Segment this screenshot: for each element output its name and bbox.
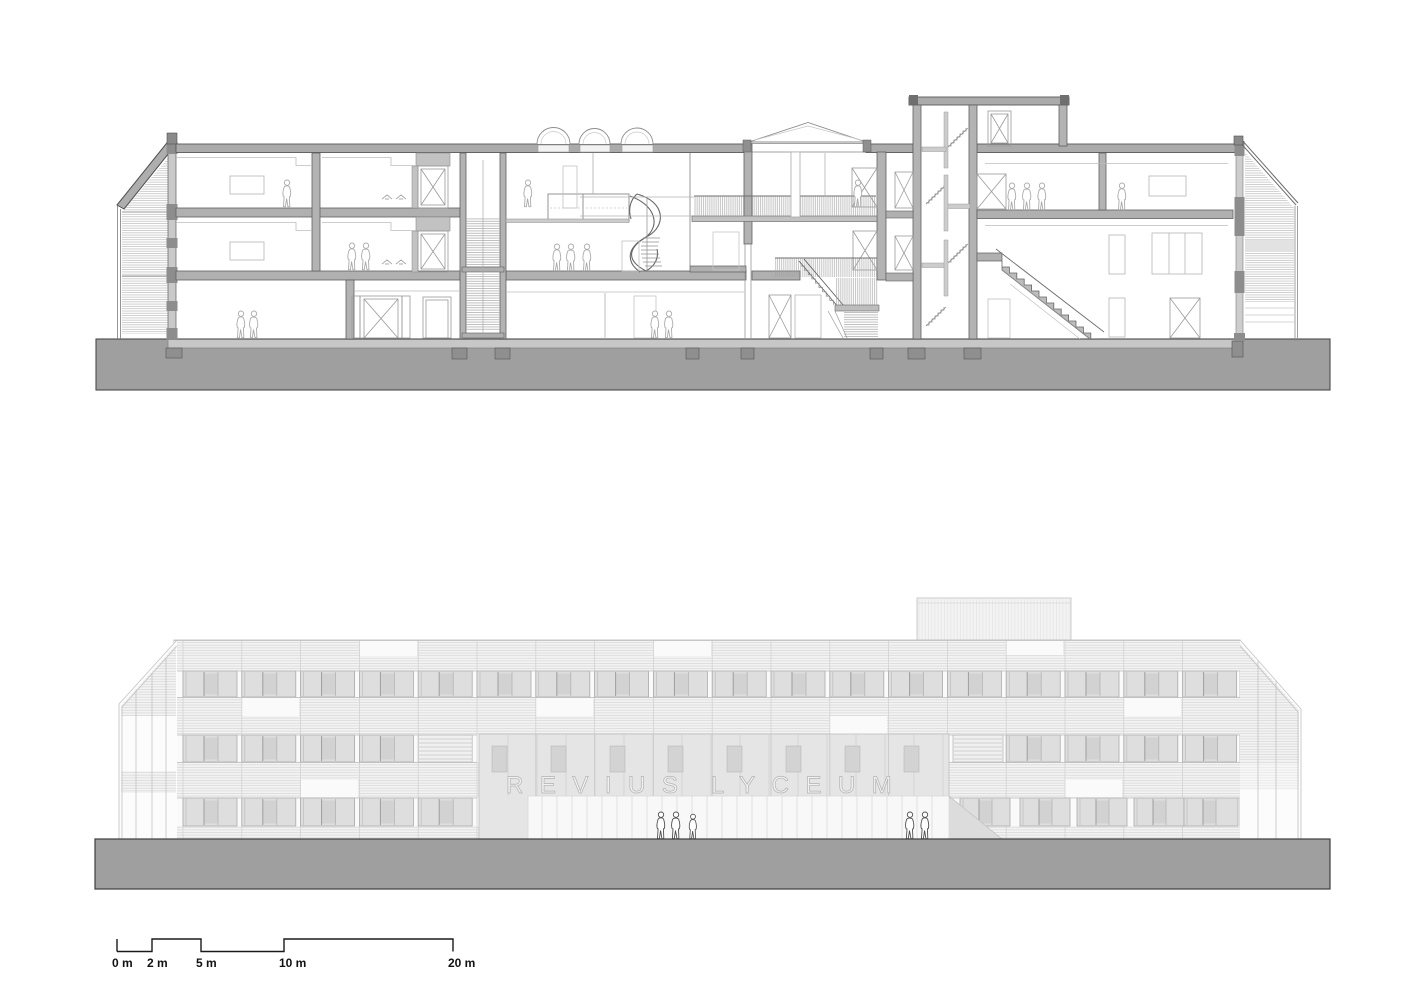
svg-text:10 m: 10 m (279, 956, 306, 970)
svg-text:0 m: 0 m (112, 956, 133, 970)
svg-text:LYCEUM: LYCEUM (711, 772, 908, 799)
svg-text:2 m: 2 m (147, 956, 168, 970)
svg-text:5 m: 5 m (196, 956, 217, 970)
svg-text:REVIUS: REVIUS (506, 772, 694, 799)
svg-text:20 m: 20 m (448, 956, 475, 970)
